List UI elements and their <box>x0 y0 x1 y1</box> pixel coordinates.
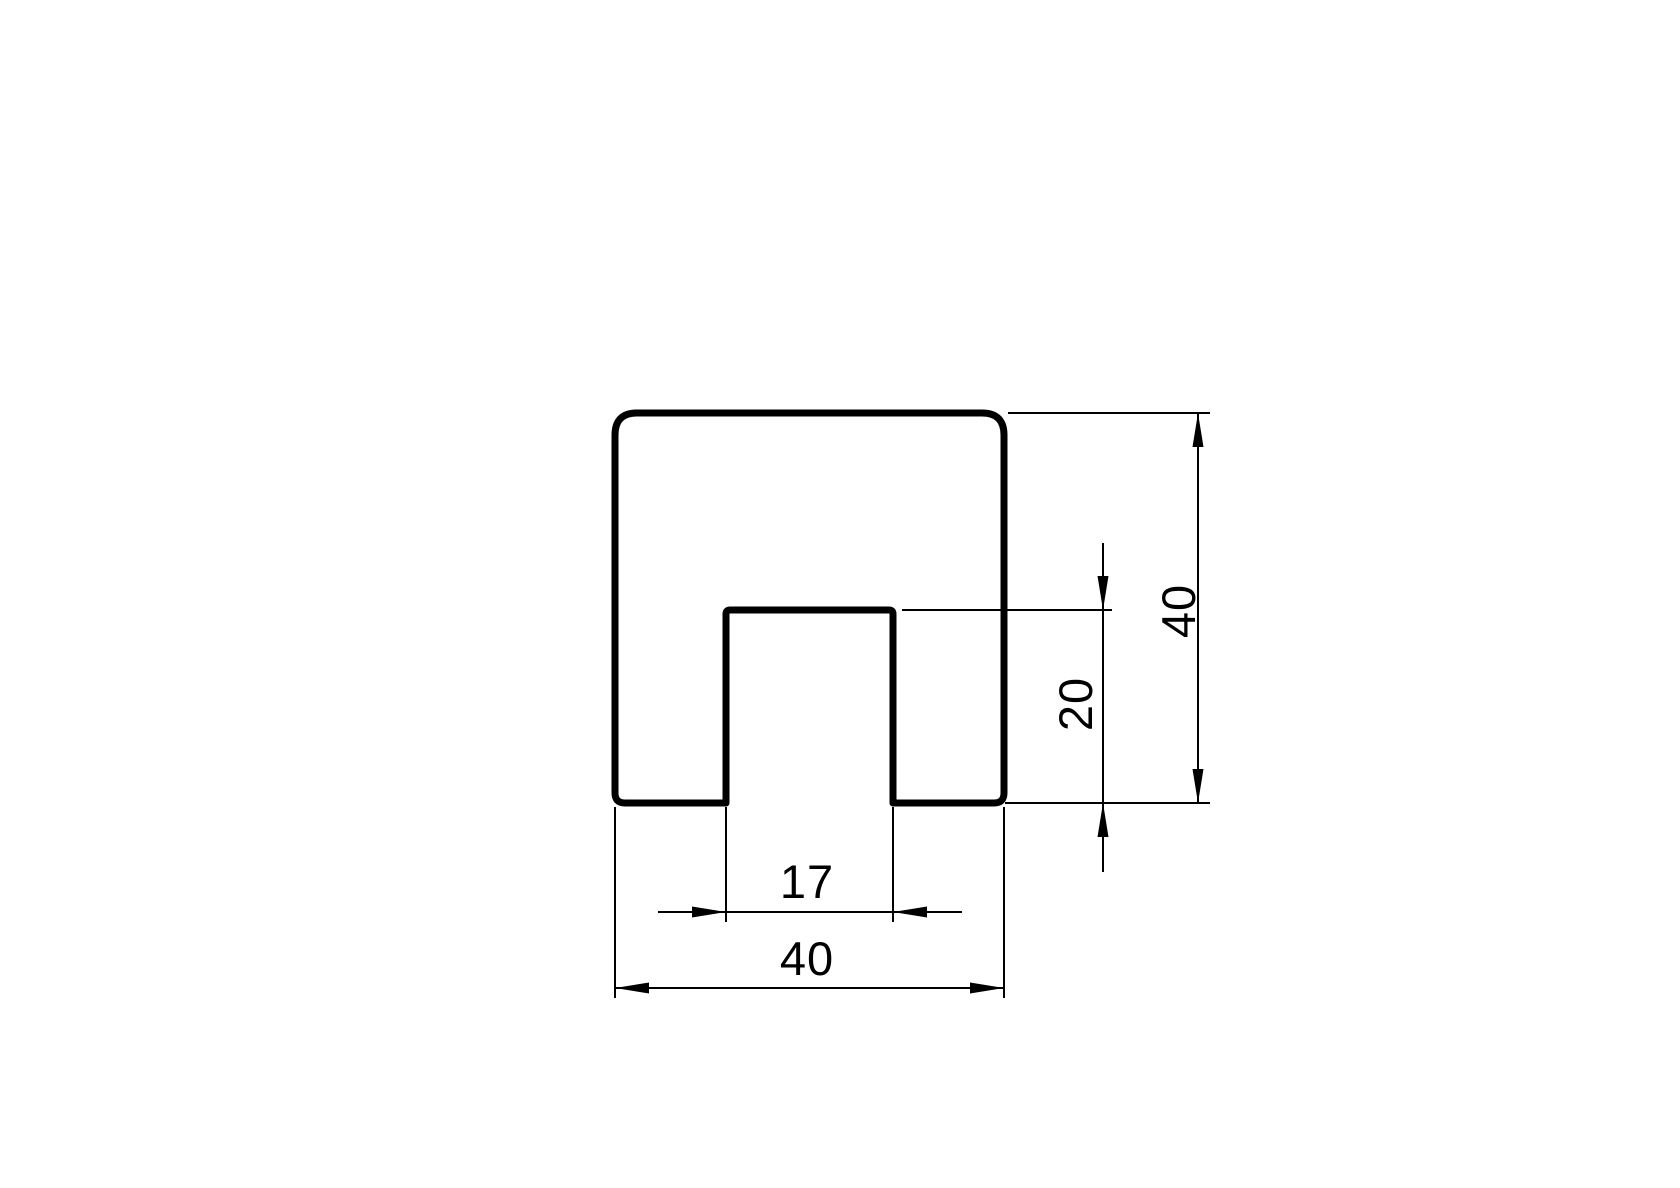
dimension-overall-height: 40 <box>1152 413 1205 803</box>
dimension-slot-width: 17 <box>658 855 962 918</box>
arrowhead-down-icon <box>1193 769 1204 803</box>
drawing-canvas: 40 20 17 40 <box>0 0 1680 1188</box>
dimension-value: 40 <box>780 932 834 985</box>
arrowhead-down-icon <box>1098 576 1109 610</box>
dimension-value: 20 <box>1049 677 1102 731</box>
arrowhead-up-icon <box>1193 413 1204 447</box>
technical-drawing: 40 20 17 40 <box>0 0 1680 1188</box>
dimension-slot-depth: 20 <box>1049 543 1109 872</box>
arrowhead-up-icon <box>1098 803 1109 837</box>
arrowhead-right-icon <box>970 983 1004 994</box>
arrowhead-left-icon <box>615 983 649 994</box>
arrowhead-left-icon <box>893 907 927 918</box>
dimension-overall-width: 40 <box>615 932 1004 994</box>
arrowhead-right-icon <box>692 907 726 918</box>
profile-outline <box>615 413 1004 803</box>
dimension-value: 40 <box>1152 584 1205 638</box>
dimension-value: 17 <box>780 855 834 908</box>
